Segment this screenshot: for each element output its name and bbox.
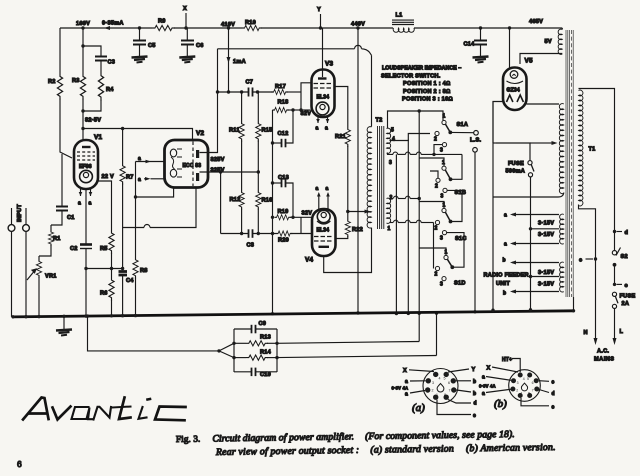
svg-text:5: 5 (444, 377, 446, 381)
svg-text:3·15V: 3·15V (538, 232, 554, 238)
svg-text:R19: R19 (278, 209, 289, 215)
svg-text:MAINS: MAINS (594, 357, 615, 363)
svg-text:R15: R15 (262, 128, 273, 134)
svg-text:6: 6 (532, 381, 534, 385)
svg-text:R2: R2 (48, 79, 56, 85)
svg-text:d: d (625, 230, 629, 236)
svg-text:a: a (482, 391, 485, 397)
svg-text:6·3V 4A: 6·3V 4A (479, 384, 496, 389)
svg-text:EL34: EL34 (317, 228, 330, 234)
svg-text:a: a (89, 201, 92, 207)
svg-text:V4: V4 (305, 257, 314, 264)
svg-text:8: 8 (528, 392, 530, 396)
svg-text:S1A: S1A (457, 122, 469, 128)
svg-text:5: 5 (527, 377, 529, 381)
svg-text:6: 6 (448, 381, 450, 385)
svg-text:a: a (504, 242, 507, 248)
svg-text:465V: 465V (529, 19, 543, 25)
svg-text:5V: 5V (545, 39, 552, 45)
svg-text:3: 3 (517, 381, 519, 385)
svg-text:c: c (473, 413, 476, 419)
svg-text:b: b (503, 291, 506, 297)
svg-text:C3: C3 (108, 60, 116, 66)
svg-text:3: 3 (440, 148, 443, 154)
svg-text:Y: Y (472, 367, 476, 373)
svg-text:3: 3 (440, 236, 443, 242)
svg-text:R7: R7 (126, 175, 134, 181)
svg-text:V5: V5 (525, 58, 534, 65)
svg-text:R21: R21 (335, 134, 346, 140)
svg-text:(a): (a) (412, 402, 425, 414)
svg-text:b: b (503, 258, 506, 264)
svg-text:7: 7 (532, 388, 534, 392)
svg-text:2: 2 (516, 388, 518, 392)
svg-text:b: b (473, 391, 476, 397)
svg-text:160V: 160V (76, 21, 90, 27)
svg-text:2: 2 (432, 389, 434, 393)
svg-text:6: 6 (17, 459, 22, 469)
svg-text:R4: R4 (106, 87, 114, 93)
svg-text:V2: V2 (196, 130, 205, 137)
svg-text:a: a (326, 186, 329, 192)
svg-text:2A: 2A (622, 301, 630, 307)
svg-text:C9: C9 (259, 321, 267, 327)
svg-text:5: 5 (391, 128, 394, 134)
svg-text:C12: C12 (278, 131, 289, 137)
svg-text:2: 2 (435, 272, 438, 278)
svg-text:1: 1 (436, 393, 438, 397)
svg-text:d: d (552, 391, 555, 397)
svg-text:R9: R9 (158, 19, 166, 25)
svg-text:4: 4 (392, 137, 395, 143)
svg-text:32V: 32V (301, 111, 312, 117)
svg-text:2: 2 (435, 226, 438, 232)
svg-text:6·3V 4A: 6·3V 4A (392, 386, 409, 391)
svg-text:C14: C14 (464, 42, 476, 48)
svg-text:V1: V1 (94, 134, 103, 141)
svg-text:3: 3 (389, 160, 392, 166)
svg-text:a: a (138, 156, 141, 162)
svg-text:S2: S2 (621, 254, 628, 260)
svg-text:7: 7 (449, 389, 451, 393)
svg-text:T2: T2 (376, 118, 383, 124)
svg-text:A.C.: A.C. (597, 349, 609, 355)
svg-text:HT+: HT+ (502, 357, 512, 363)
svg-text:a: a (405, 379, 408, 385)
svg-text:32V: 32V (302, 211, 313, 217)
svg-text:22 V: 22 V (102, 174, 115, 180)
svg-text:500mA: 500mA (506, 169, 526, 175)
svg-text:FUSE: FUSE (620, 294, 636, 300)
svg-text:2: 2 (434, 137, 437, 143)
svg-text:EL34: EL34 (317, 95, 330, 101)
svg-text:a: a (316, 186, 319, 192)
svg-text:3·15V: 3·15V (538, 221, 554, 227)
svg-text:POSITION 1 : 4Ω: POSITION 1 : 4Ω (403, 81, 451, 87)
svg-text:c: c (625, 283, 628, 289)
svg-text:R17: R17 (275, 84, 286, 90)
svg-text:1: 1 (388, 226, 391, 232)
svg-text:POSITION 2 : 8Ω: POSITION 2 : 8Ω (403, 89, 451, 95)
svg-text:1: 1 (443, 114, 446, 120)
svg-text:3·15V: 3·15V (538, 282, 554, 288)
svg-text:GZ34: GZ34 (507, 88, 520, 94)
svg-text:8: 8 (444, 393, 446, 397)
svg-text:e: e (579, 258, 582, 264)
svg-text:X: X (403, 368, 407, 374)
svg-text:0·85mA: 0·85mA (102, 21, 124, 27)
svg-text:3: 3 (440, 282, 443, 288)
svg-text:ECC 83: ECC 83 (183, 163, 202, 169)
svg-text:C2: C2 (70, 246, 78, 252)
svg-text:VR1: VR1 (45, 274, 57, 280)
svg-text:L1: L1 (396, 13, 403, 19)
svg-text:a: a (316, 126, 319, 132)
svg-text:a: a (325, 126, 328, 132)
svg-text:a: a (504, 213, 507, 219)
svg-text:T1: T1 (589, 147, 596, 153)
svg-text:EF86: EF86 (79, 164, 92, 170)
svg-text:a: a (482, 375, 485, 381)
svg-text:C6: C6 (196, 43, 204, 49)
svg-text:S1C: S1C (455, 236, 467, 242)
svg-text:R20: R20 (278, 238, 289, 244)
svg-text:3: 3 (432, 381, 434, 385)
svg-text:R12: R12 (230, 197, 241, 203)
svg-text:3·15V: 3·15V (538, 270, 554, 276)
svg-text:C10: C10 (260, 372, 271, 378)
svg-text:L: L (620, 329, 624, 335)
svg-text:RADIO FEEDER: RADIO FEEDER (484, 273, 529, 279)
svg-text:2: 2 (435, 184, 438, 190)
svg-text:3: 3 (441, 194, 444, 200)
svg-text:a: a (78, 201, 81, 207)
svg-text:X: X (487, 366, 491, 372)
svg-text:1: 1 (521, 392, 523, 396)
svg-text:R13: R13 (260, 335, 271, 341)
svg-text:R14: R14 (260, 350, 272, 356)
svg-text:X: X (183, 6, 187, 12)
svg-text:d: d (474, 401, 477, 407)
svg-text:C1: C1 (67, 215, 75, 221)
svg-text:325V: 325V (211, 157, 225, 163)
svg-text:FUSE: FUSE (508, 161, 524, 167)
svg-text:R18: R18 (278, 100, 289, 106)
svg-text:e: e (552, 380, 555, 386)
svg-text:SELECTOR SWITCH.: SELECTOR SWITCH. (381, 74, 441, 80)
svg-text:R5: R5 (100, 246, 108, 252)
svg-text:R8: R8 (140, 268, 148, 274)
svg-text:c: c (552, 405, 555, 411)
svg-text:LOUDSPEAKER IMPEDANCE –: LOUDSPEAKER IMPEDANCE – (382, 66, 461, 72)
svg-text:N: N (584, 330, 588, 336)
svg-text:C8: C8 (247, 243, 255, 249)
svg-text:V3: V3 (325, 61, 334, 68)
svg-text:Y: Y (317, 7, 321, 13)
svg-text:(b): (b) (494, 398, 507, 410)
svg-text:R6: R6 (100, 291, 108, 297)
svg-text:C4: C4 (126, 278, 134, 284)
svg-text:C7: C7 (246, 80, 254, 86)
svg-text:R16: R16 (262, 198, 273, 204)
svg-text:4: 4 (523, 377, 525, 381)
svg-text:R3: R3 (72, 78, 80, 84)
svg-text:C13: C13 (278, 175, 289, 181)
svg-text:L.S.: L.S. (470, 138, 481, 144)
svg-text:INPUT: INPUT (17, 204, 23, 222)
svg-text:UNIT: UNIT (496, 281, 510, 287)
svg-text:4: 4 (439, 377, 441, 381)
svg-text:C5: C5 (148, 43, 156, 49)
svg-text:b: b (473, 379, 476, 385)
svg-text:325V: 325V (211, 168, 225, 174)
svg-text:82·5V: 82·5V (85, 118, 101, 124)
svg-text:1mA: 1mA (233, 59, 246, 65)
svg-text:a: a (405, 392, 408, 398)
svg-text:a: a (138, 177, 141, 183)
svg-text:S1D: S1D (454, 281, 466, 287)
svg-text:POSITION 3 : 16Ω: POSITION 3 : 16Ω (402, 97, 453, 103)
